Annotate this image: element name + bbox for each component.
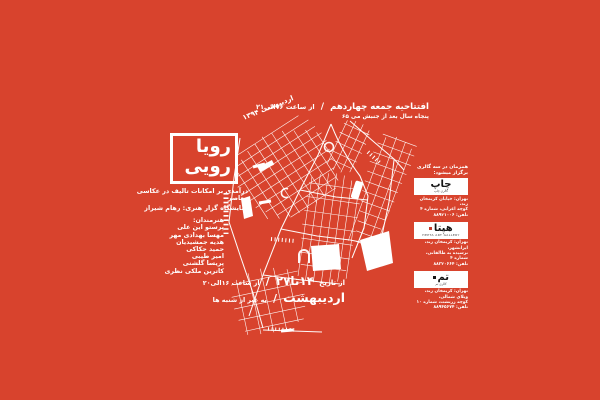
- exhibition-subtitle: درآمدی بر امکانات تالیف در عکاسی معاصر: [136, 188, 248, 203]
- duration-dates: ۱۴تا۲۷: [276, 274, 314, 288]
- address-line: نرسیده به طالقانی، شماره ۴: [414, 251, 468, 262]
- opening-title: افتتاحیه جمعه چهاردهم: [330, 102, 429, 112]
- gallery-logo-box-hepta: هپتا HEPTA ART GALLERY: [414, 222, 468, 239]
- title-line-1: رویا: [175, 137, 231, 157]
- address-line: کوچه اعرابی، شماره ۴: [414, 207, 468, 212]
- artists-list: هنرمندان: پرستو این علی مهسا بهدادی مهر …: [136, 217, 248, 275]
- artist-name: پریسا گلشنی: [136, 260, 224, 267]
- duration-month: اردیبهشت: [283, 290, 345, 305]
- gallery-address: تهران: کریمخان زند، ایرانشهر، نرسیده به …: [414, 240, 468, 266]
- artist-name: حمید حکاکی: [136, 246, 224, 253]
- separator-slash: /: [272, 292, 278, 305]
- curator-line: نمایشگاه گزار هنری: رهام شیراز: [136, 205, 248, 212]
- address-line: تهران: کریمخان زند، ویلای شمالی،: [414, 289, 468, 300]
- address-line: تلفن: ۸۸۹۴۵۶۷۴: [414, 305, 468, 310]
- address-line: تهران: خیابان کریمخان زند،: [414, 197, 468, 208]
- duration-block: از تاریخ ۱۴تا۲۷ / از ساعت ۱۶الی۲۰ اردیبه…: [203, 274, 345, 307]
- logo-accent-square: [429, 227, 432, 230]
- duration-note: به غیر از شنبه ها: [213, 296, 267, 304]
- artists-label: هنرمندان:: [136, 217, 224, 224]
- title-box: رویا رویی: [170, 133, 238, 184]
- about-block: درآمدی بر امکانات تالیف در عکاسی معاصر ن…: [136, 188, 248, 275]
- duration-line-1: از تاریخ ۱۴تا۲۷ / از ساعت ۱۶الی۲۰: [203, 274, 345, 289]
- opening-subtitle: پنجاه سال بعد از جنبش می ۶۵: [256, 114, 429, 121]
- gallery-logo-box-chap: چاپ گالری چاپ: [414, 178, 468, 195]
- artist-name: هدیه جمشیدیان: [136, 239, 224, 246]
- gallery-logo-tagline: گالری چاپ: [434, 190, 448, 194]
- city-map-graphic: [0, 0, 600, 400]
- gallery-logo-tagline: گالری تم: [435, 283, 446, 287]
- duration-prefix: از تاریخ: [319, 279, 345, 287]
- address-line: تلفن: ۸۸۳۲۰۶۶۴: [414, 262, 468, 267]
- separator-slash: /: [320, 102, 325, 112]
- gallery-address: تهران: کریمخان زند، ویلای شمالی، کوچه زر…: [414, 289, 468, 310]
- galleries-header: همزمان در سه گالری برگزار میشود:: [414, 165, 468, 176]
- address-line: تهران: کریمخان زند، ایرانشهر،: [414, 240, 468, 251]
- address-line: تلفن: ۸۸۹۲۱۰۰۶: [414, 213, 468, 218]
- gallery-logo-box-tam: تم گالری تم: [414, 271, 468, 288]
- title-line-2: رویی: [175, 157, 231, 177]
- logo-accent-square: [433, 276, 436, 279]
- galleries-panel: همزمان در سه گالری برگزار میشود: چاپ گال…: [414, 165, 468, 315]
- duration-line-2: اردیبهشت / به غیر از شنبه ها: [203, 290, 345, 307]
- gallery-logo-tagline: HEPTA ART GALLERY: [422, 234, 459, 238]
- gallery-address: تهران: خیابان کریمخان زند، کوچه اعرابی، …: [414, 197, 468, 218]
- artist-name: مهسا بهدادی مهر: [136, 232, 224, 239]
- duration-hours: از ساعت ۱۶الی۲۰: [203, 279, 260, 287]
- exhibition-poster: رویا رویی افتتاحیه جمعه چهاردهم / از ساع…: [0, 0, 600, 400]
- artist-name: پرستو این علی: [136, 224, 224, 231]
